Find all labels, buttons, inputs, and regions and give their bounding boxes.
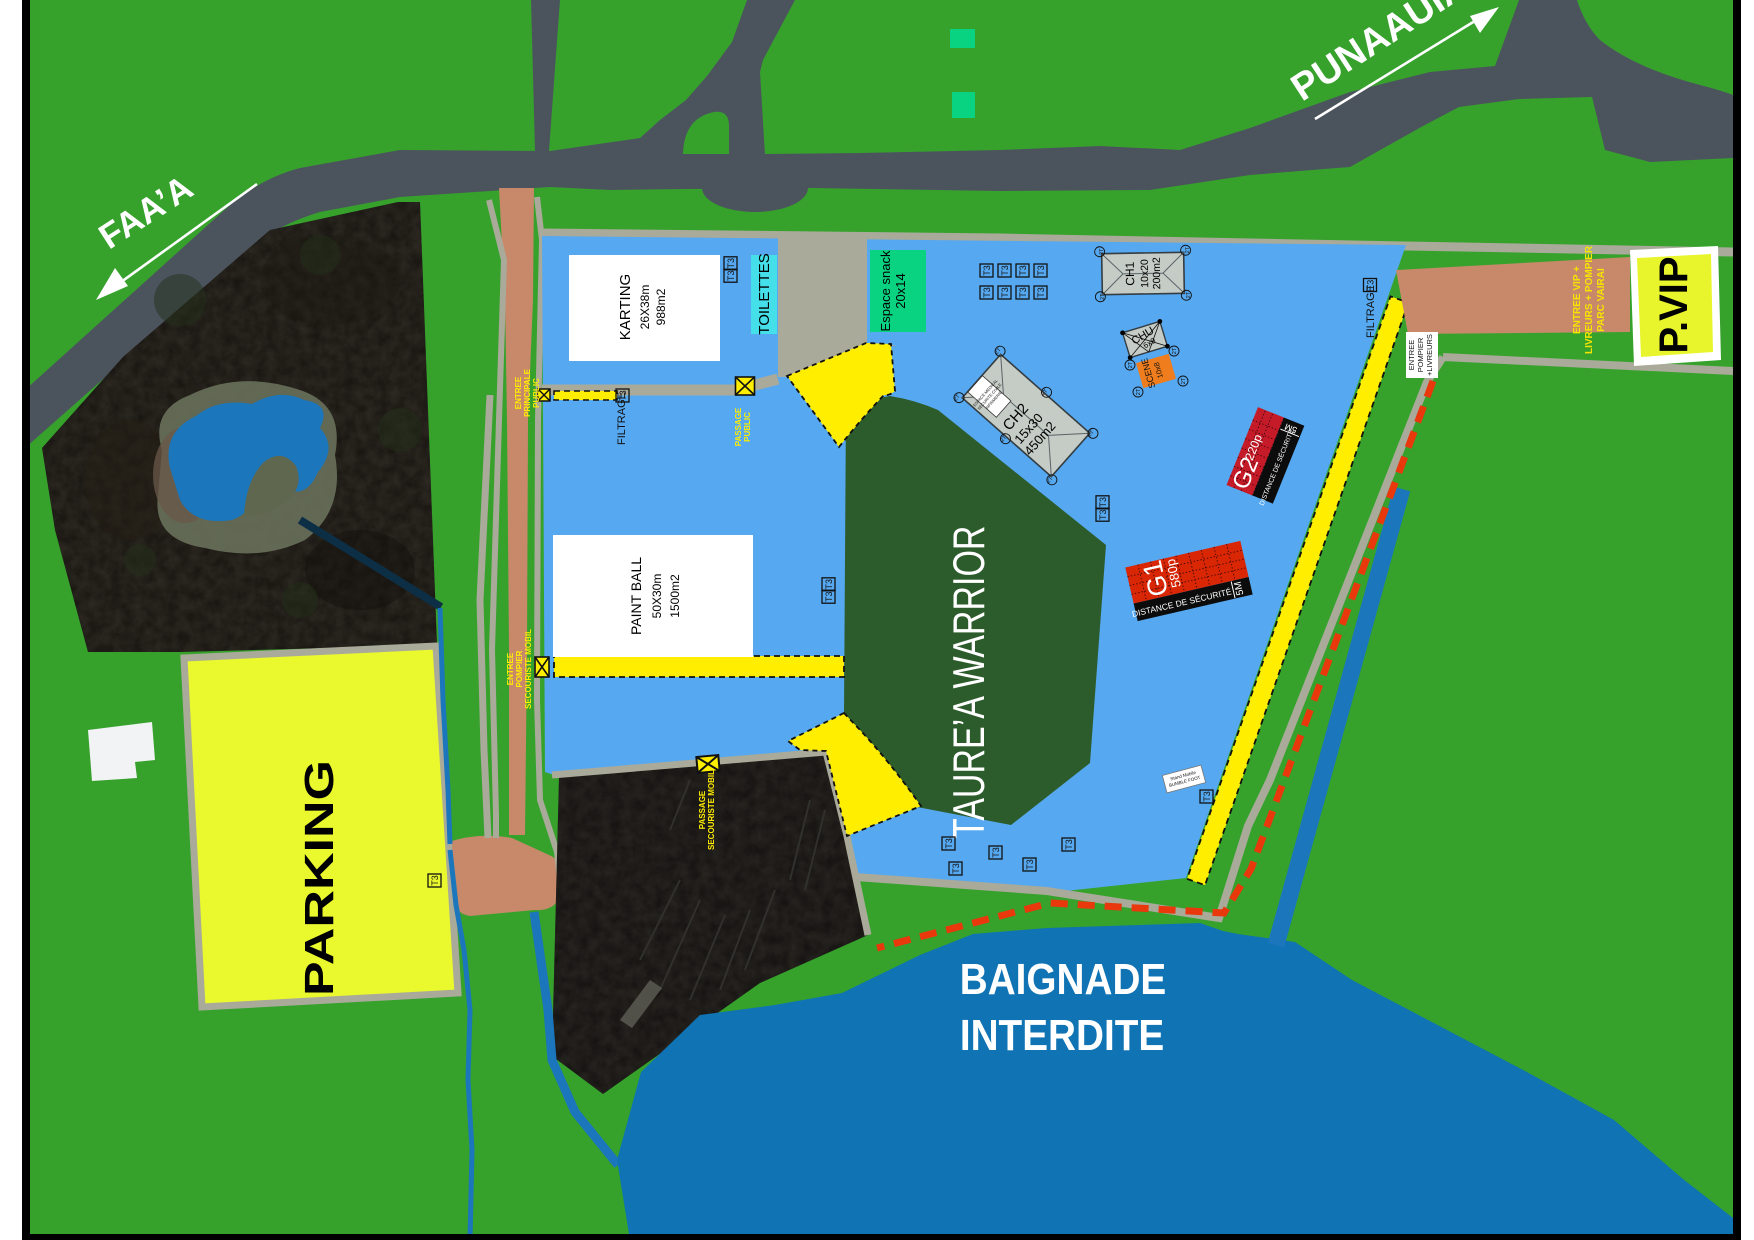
svg-text:PARC VAIRAI: PARC VAIRAI <box>1596 268 1607 332</box>
svg-text:2T: 2T <box>1100 293 1106 300</box>
svg-text:988m2: 988m2 <box>654 288 668 325</box>
svg-text:PAINT BALL: PAINT BALL <box>628 557 644 635</box>
svg-text:BAIGNADE: BAIGNADE <box>960 954 1166 1004</box>
svg-text:LIVREURS + POMPIER: LIVREURS + POMPIER <box>1584 245 1595 354</box>
svg-text:ENTREE VIP +: ENTREE VIP + <box>1572 266 1583 334</box>
svg-text:2T: 2T <box>1172 347 1178 354</box>
svg-text:2T: 2T <box>1181 377 1187 384</box>
svg-text:ENTREE: ENTREE <box>514 376 523 409</box>
svg-text:+LIVREURS: +LIVREURS <box>1425 334 1434 376</box>
svg-text:PRINCIPALE: PRINCIPALE <box>523 368 532 417</box>
svg-text:PASSAGE: PASSAGE <box>734 407 743 446</box>
svg-text:PARKING: PARKING <box>296 760 341 996</box>
svg-text:INTERDITE: INTERDITE <box>960 1010 1164 1060</box>
svg-text:FILTRAGE: FILTRAGE <box>616 392 628 445</box>
svg-text:ENTREE: ENTREE <box>506 652 515 685</box>
svg-text:TOILETTES: TOILETTES <box>756 253 773 334</box>
svg-text:SECOURISTE MOBIL: SECOURISTE MOBIL <box>707 770 716 850</box>
svg-text:2T: 2T <box>1185 246 1191 253</box>
svg-text:2T: 2T <box>1186 291 1192 298</box>
svg-text:20x14: 20x14 <box>893 273 908 308</box>
svg-text:PASSAGE: PASSAGE <box>698 790 707 829</box>
svg-text:KARTING: KARTING <box>617 274 634 340</box>
svg-text:POMPIER: POMPIER <box>515 650 524 687</box>
svg-text:50X30m: 50X30m <box>650 574 664 619</box>
svg-text:2T: 2T <box>1099 248 1105 255</box>
svg-text:1500m2: 1500m2 <box>668 574 682 618</box>
svg-text:10x20: 10x20 <box>1139 259 1152 288</box>
svg-text:ENTREE: ENTREE <box>1407 340 1416 370</box>
svg-text:FILTRAGE: FILTRAGE <box>1365 285 1377 338</box>
svg-text:P.VIP: P.VIP <box>1652 256 1696 353</box>
svg-text:TAURE’A WARRIOR: TAURE’A WARRIOR <box>945 526 995 839</box>
svg-text:200m2: 200m2 <box>1151 257 1164 289</box>
svg-text:POMPIER: POMPIER <box>1416 337 1425 372</box>
svg-text:CH1: CH1 <box>1123 261 1137 286</box>
svg-text:26X38m: 26X38m <box>638 285 652 330</box>
svg-text:PUBLIC: PUBLIC <box>532 378 541 408</box>
svg-text:2T: 2T <box>1128 361 1134 368</box>
svg-text:PUBLIC: PUBLIC <box>743 412 752 442</box>
svg-text:Espace snack: Espace snack <box>878 250 893 331</box>
svg-text:2T: 2T <box>1136 388 1142 395</box>
svg-text:SECOURISTE MOBIL: SECOURISTE MOBIL <box>524 629 533 709</box>
